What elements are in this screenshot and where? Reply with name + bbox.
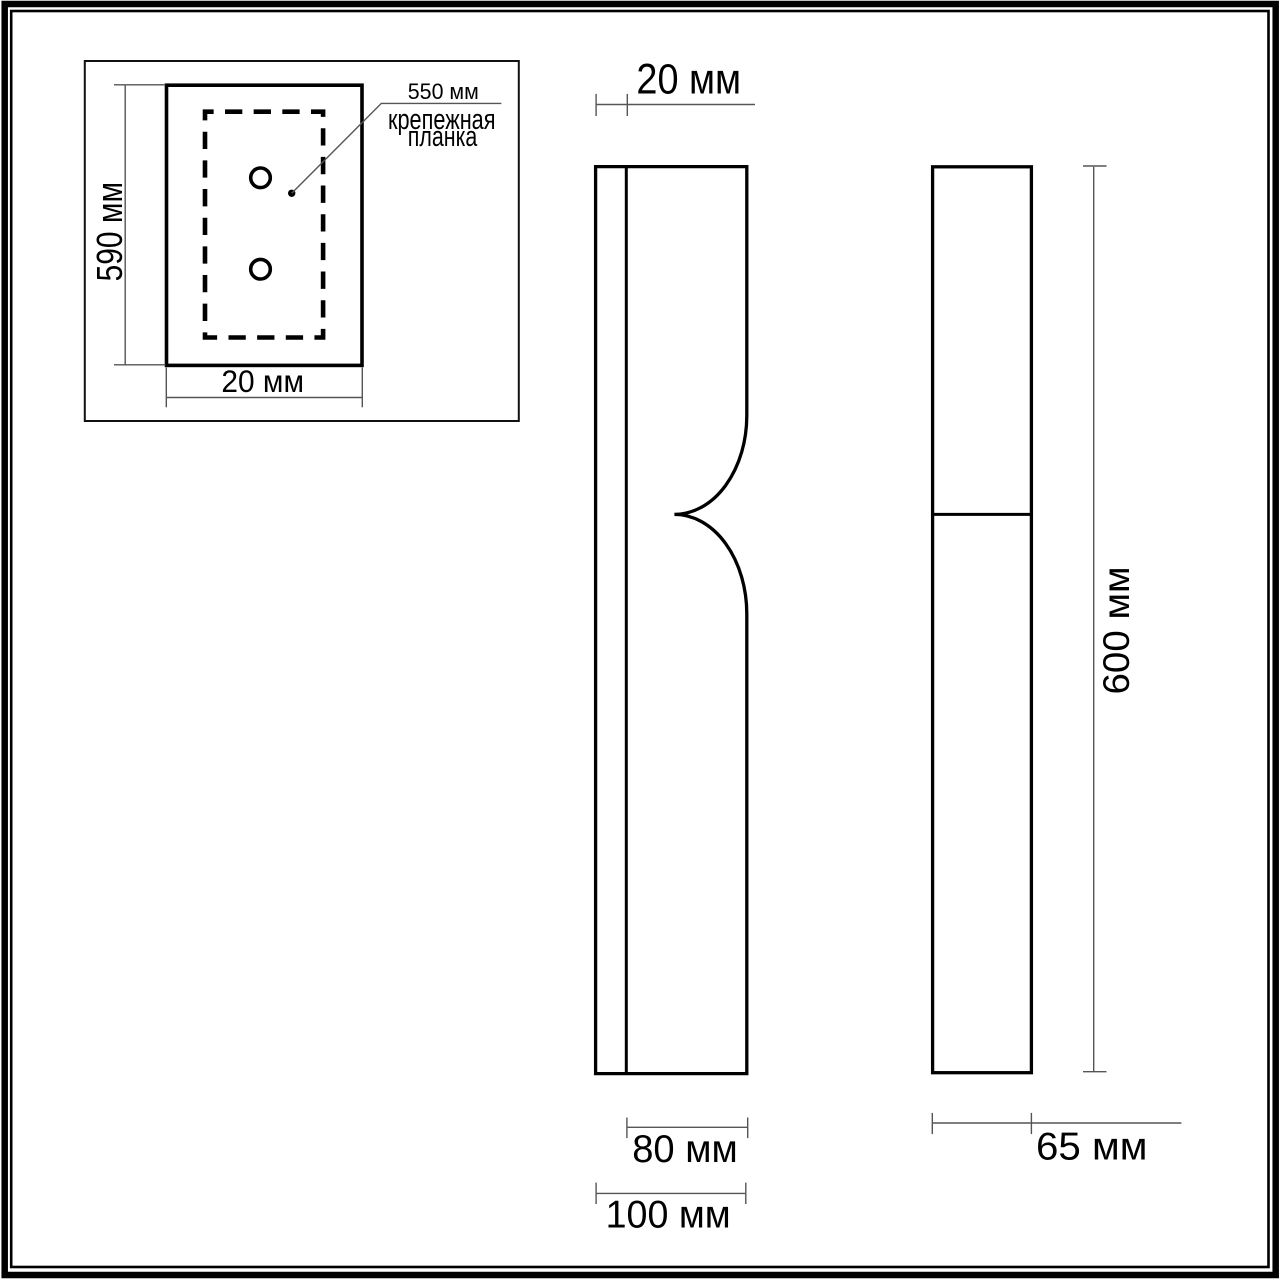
svg-text:100 мм: 100 мм xyxy=(606,1193,731,1236)
svg-text:550 мм: 550 мм xyxy=(408,79,479,104)
svg-text:планка: планка xyxy=(408,121,478,153)
svg-text:20 мм: 20 мм xyxy=(636,56,741,103)
svg-text:590 мм: 590 мм xyxy=(90,182,130,282)
svg-text:600 мм: 600 мм xyxy=(1095,567,1137,695)
svg-text:20 мм: 20 мм xyxy=(221,364,304,399)
svg-text:65 мм: 65 мм xyxy=(1036,1125,1147,1168)
svg-text:80 мм: 80 мм xyxy=(632,1128,738,1171)
